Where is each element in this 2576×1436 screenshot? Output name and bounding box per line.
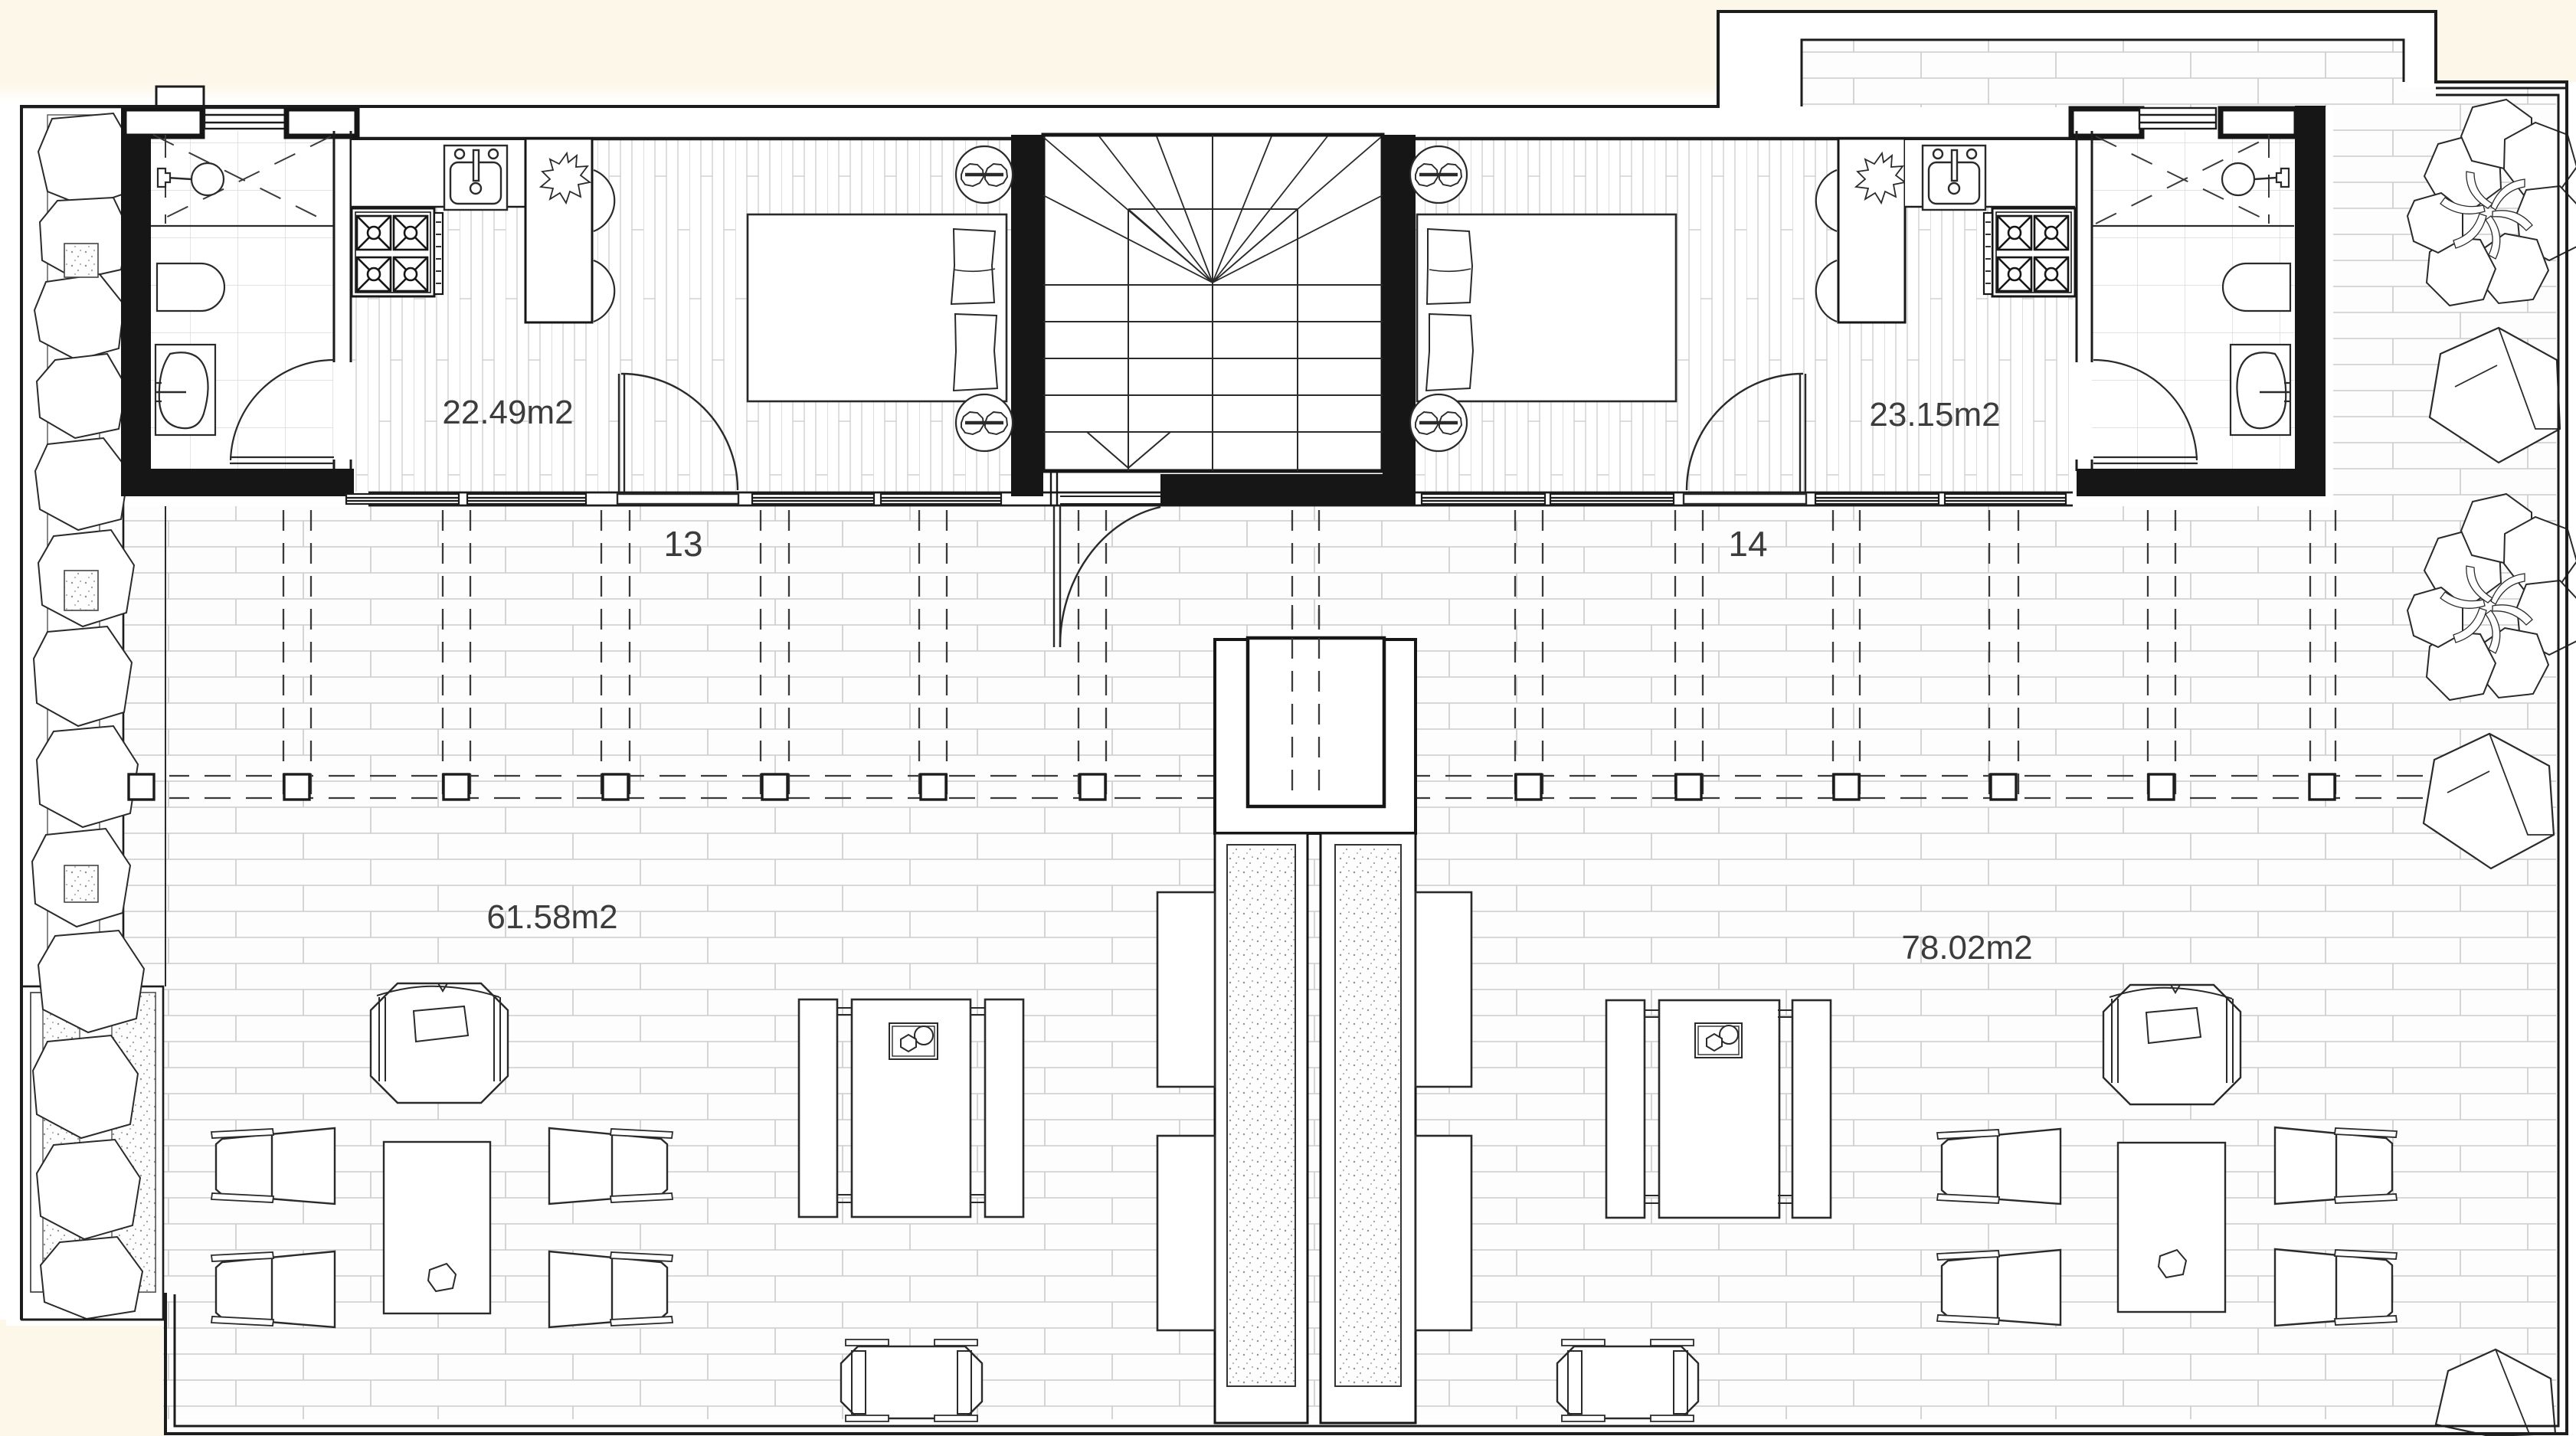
svg-text:13: 13 — [663, 524, 702, 564]
svg-text:78.02m2: 78.02m2 — [1901, 929, 2032, 967]
svg-text:23.15m2: 23.15m2 — [1869, 396, 2000, 433]
svg-text:22.49m2: 22.49m2 — [442, 394, 573, 431]
svg-text:14: 14 — [1728, 524, 1767, 564]
svg-text:61.58m2: 61.58m2 — [486, 898, 617, 936]
